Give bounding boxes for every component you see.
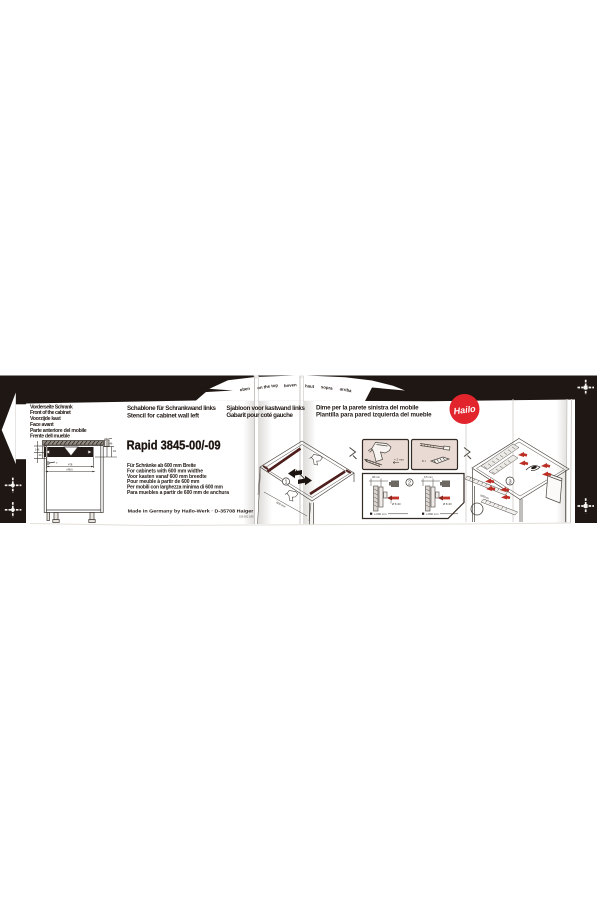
svg-text:≥ 600 mm: ≥ 600 mm	[374, 512, 387, 516]
svg-text:1/2: 1/2	[113, 449, 117, 453]
svg-text:2: 2	[408, 481, 411, 487]
svg-text:38 mm: 38 mm	[372, 475, 380, 479]
svg-text:8 ×: 8 ×	[422, 459, 427, 463]
svg-text:haut: haut	[305, 383, 315, 389]
svg-text:Para muebles a partir de 600 m: Para muebles a partir de 600 mm de anchu…	[127, 490, 229, 496]
svg-text:≥ 800 mm: ≥ 800 mm	[426, 512, 439, 516]
svg-text:(490): (490)	[67, 468, 73, 472]
svg-text:146: 146	[35, 448, 40, 452]
svg-text:106 502 189: 106 502 189	[239, 515, 254, 519]
svg-text:9,5 mm: 9,5 mm	[424, 475, 433, 479]
svg-text:min: min	[105, 437, 110, 441]
svg-text:Frente dell mueble: Frente dell mueble	[30, 434, 70, 440]
svg-text:Gabarit pour coté gauche: Gabarit pour coté gauche	[226, 412, 293, 419]
svg-text:Schablone für Schrankwand link: Schablone für Schrankwand links	[127, 405, 217, 412]
svg-text:Plantilla para pared izquierda: Plantilla para pared izquierda del muebl…	[316, 411, 432, 418]
svg-text:1: 1	[285, 480, 288, 486]
svg-text:Stencil for cabinet wall left: Stencil for cabinet wall left	[127, 412, 199, 419]
svg-text:146: 146	[108, 442, 113, 446]
svg-text:478: 478	[68, 463, 73, 467]
svg-text:Rapid 3845-00/-09: Rapid 3845-00/-09	[127, 437, 221, 452]
svg-text:Sjabloon voor kastwand links: Sjabloon voor kastwand links	[226, 405, 305, 412]
svg-text:Ø 5×40: Ø 5×40	[392, 502, 401, 506]
svg-text:3: 3	[508, 479, 511, 485]
svg-text:Dime per la parete sinistra de: Dime per la parete sinistra del mobile	[316, 404, 419, 411]
svg-text:Made in Germany by Hailo-Werk: Made in Germany by Hailo-Werk · D-35708 …	[128, 508, 254, 514]
svg-text:Ø 5×40: Ø 5×40	[443, 502, 452, 506]
svg-text:≈ 2 mm: ≈ 2 mm	[394, 458, 404, 462]
